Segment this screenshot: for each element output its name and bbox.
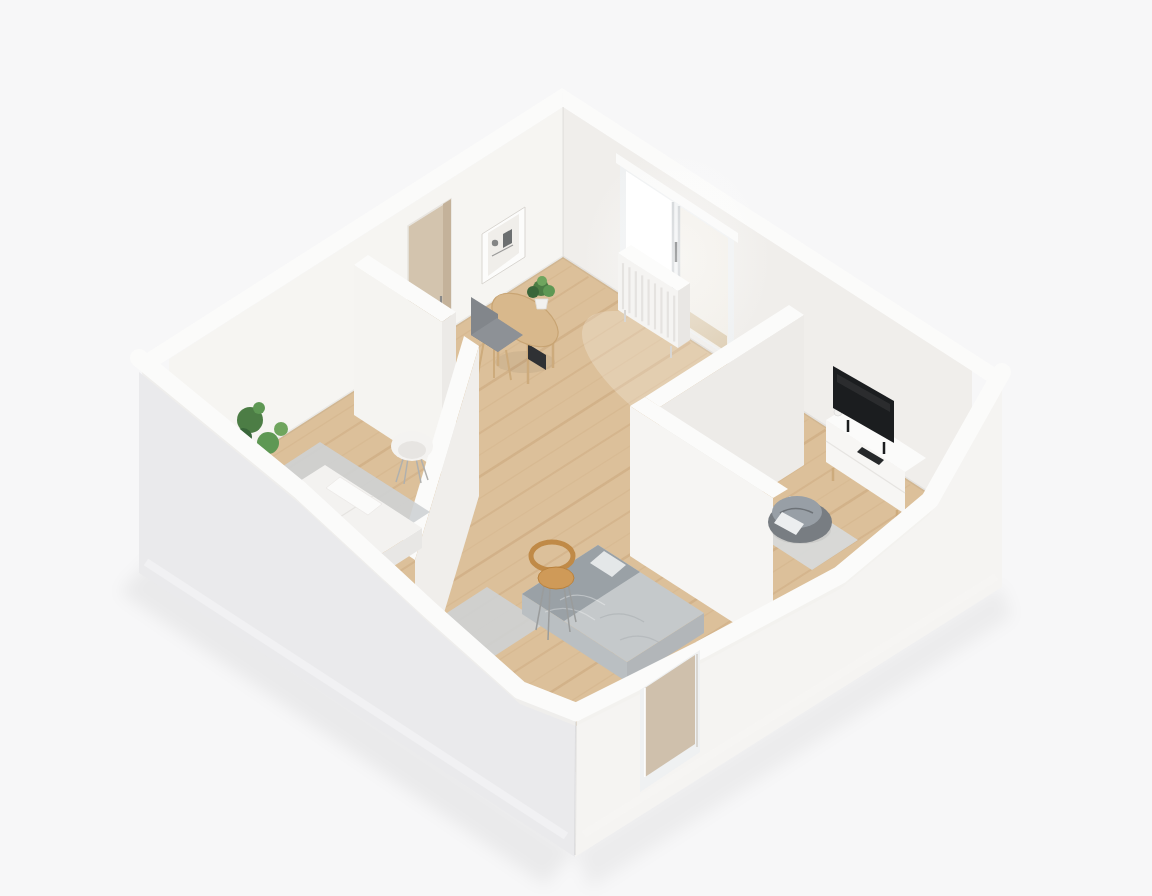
isometric-scene bbox=[0, 0, 1152, 896]
plant-leaf bbox=[274, 422, 288, 436]
wooden-chair-seat bbox=[538, 567, 574, 589]
desk-plant-leaf bbox=[543, 285, 555, 297]
radiator-end bbox=[678, 283, 690, 348]
plant-leaf bbox=[253, 402, 265, 414]
desk-plant-leaf bbox=[527, 286, 539, 298]
art-shape-dot bbox=[492, 240, 498, 246]
desk-plant-pot bbox=[535, 299, 548, 309]
floor-plan-render bbox=[0, 0, 1152, 896]
desk-plant-leaf bbox=[537, 276, 547, 286]
tub-chair-seat bbox=[398, 441, 426, 459]
facade-corner-edge bbox=[575, 722, 576, 855]
